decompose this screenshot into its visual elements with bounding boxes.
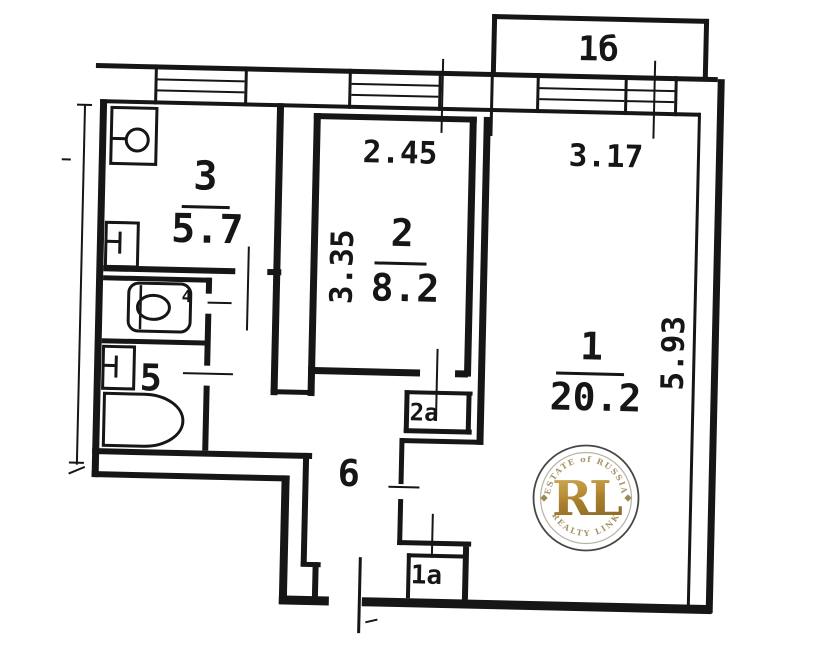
wall-segment [464,117,477,377]
dimension-3-17: 3.17 [568,138,643,176]
wall-segment [271,389,315,395]
closet-2a-number: 2а [409,398,439,427]
wall-segment [92,448,312,459]
wall-segment [399,438,405,484]
entrance-door-line [357,557,362,633]
balcony-number: 1б [577,29,619,70]
wall-segment [312,562,319,600]
dimension-3-35: 3.35 [324,229,362,304]
wall-segment [314,113,477,123]
door-swing-line [388,486,419,489]
entrance-door-tick [365,619,377,622]
wall-segment [279,475,290,603]
wall-segment [399,438,483,445]
room6-number: 6 [337,452,360,495]
wall-segment [92,471,290,481]
room1-area: 20.2 [549,374,641,420]
wall-segment [455,370,468,377]
wall-segment [103,275,211,282]
dimension-5-93: 5.93 [655,315,693,390]
door-swing-line [183,372,233,375]
wall-segment [270,103,284,395]
apartment-plan: 3 5.7 2.45 2 8.2 3.35 3.17 1 20.2 5.93 4… [51,4,726,641]
wall-segment [307,113,320,396]
wall-segment [301,453,310,566]
room5-number: 5 [139,356,162,399]
dimension-2-45: 2.45 [362,134,437,172]
wall-segment [206,278,212,294]
sink-icon [105,222,138,267]
kitchen-sink-icon [111,107,157,164]
room1-number: 1 [580,324,604,369]
wall-segment [202,386,209,451]
floor-plan-svg: 3 5.7 2.45 2 8.2 3.35 3.17 1 20.2 5.93 4… [0,0,837,650]
watermark-monogram: RL [552,471,622,527]
room2-number: 2 [390,211,414,256]
door-swing-line [246,247,250,331]
dimension-extension-line [652,61,656,139]
wall-segment [100,99,700,117]
wall-segment [102,338,210,345]
wall-segment [706,79,725,613]
washbasin-icon [103,346,135,389]
wall-segment [204,314,211,366]
wall-segment [397,499,403,545]
door-swing-line [208,302,232,305]
floor-plan-scan: 3 5.7 2.45 2 8.2 3.35 3.17 1 20.2 5.93 4… [0,0,837,650]
room3-area: 5.7 [171,206,244,254]
closet-1a-number: 1а [410,560,442,591]
window-hatch [156,78,674,103]
dimension-line-left [55,103,93,474]
room2-area: 8.2 [370,265,440,311]
wall-segment [362,597,712,614]
wall-segment [308,367,420,377]
room3-number: 3 [193,153,218,200]
room4-number: 4 [181,287,192,307]
watermark-stamp: ESTATE of RUSSIA REALTY LINK RL [534,446,639,551]
bathtub-icon [103,393,183,447]
wall-segment [476,117,490,445]
wall-segment [397,540,471,547]
